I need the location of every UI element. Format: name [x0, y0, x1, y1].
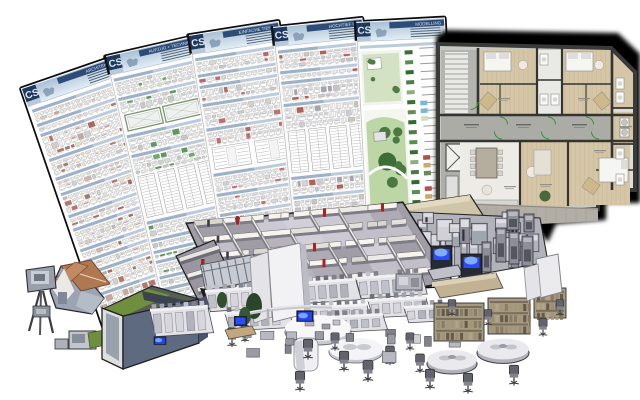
svg-text:CS: CS: [190, 37, 206, 50]
svg-text:CS: CS: [274, 29, 289, 41]
svg-text:CS: CS: [357, 25, 372, 37]
